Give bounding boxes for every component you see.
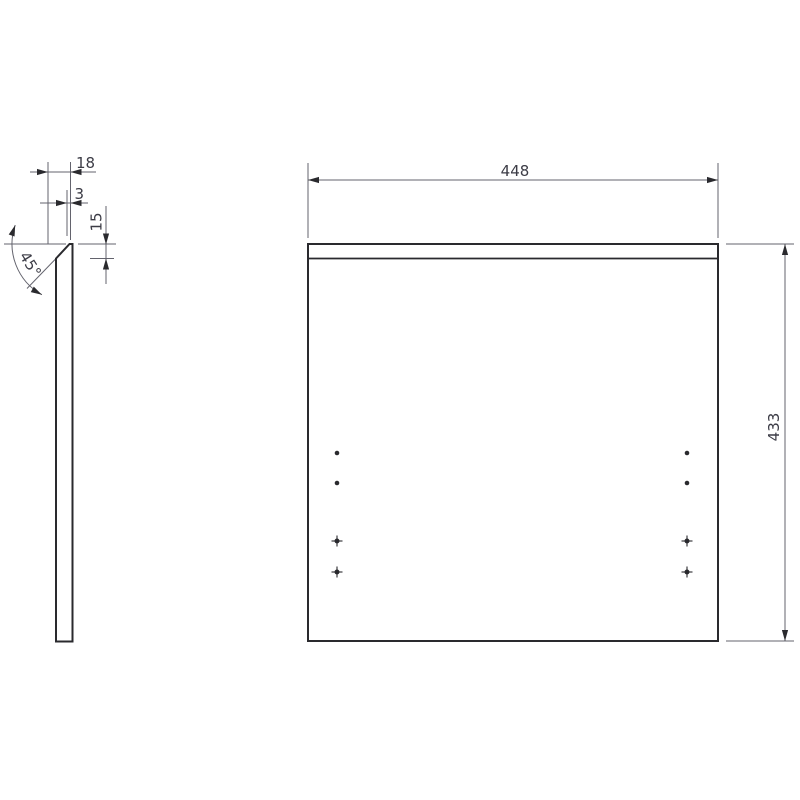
drawing-canvas: 18 3 45° 15 [0,0,800,800]
dimension-arrow [56,200,67,206]
hole-dot-marker [685,481,690,486]
side-panel-outline [56,244,73,642]
thickness-dimension-label: 18 [76,154,95,172]
chamfer-angle-label: 45° [16,248,45,280]
front-width-dimension: 448 [308,162,718,238]
hole-cross-marker [682,567,693,578]
hole-cross-marker [682,536,693,547]
hole-dot-marker [335,451,340,456]
hole-dot-marker [685,451,690,456]
chamfer-height-label: 15 [88,212,106,231]
side-thickness-dimension: 18 [30,154,96,244]
dimension-arrow [9,224,18,236]
side-chamfer-angle-dimension: 45° [4,224,116,297]
hole-cross-marker [332,567,343,578]
side-chamfer-height-dimension: 15 [88,206,115,284]
side-top-flat-dimension: 3 [40,185,88,236]
dimension-arrow [707,177,718,183]
top-flat-dimension-label: 3 [75,185,85,203]
hole-dot-markers [335,451,690,486]
dimension-arrow [103,259,109,270]
dimension-arrow [308,177,319,183]
hole-cross-marker [332,536,343,547]
height-dimension-label: 433 [765,413,783,442]
technical-drawing: 18 3 45° 15 [0,0,800,800]
side-view: 18 3 45° 15 [4,154,116,642]
hole-cross-markers [332,536,693,578]
front-plate-outline [308,244,718,641]
dimension-arrow [782,244,788,255]
dimension-arrow [103,234,109,245]
dimension-arrow [782,630,788,641]
front-view: 448 433 [308,162,794,641]
front-height-dimension: 433 [726,244,794,641]
width-dimension-label: 448 [501,162,530,180]
hole-dot-marker [335,481,340,486]
dimension-arrow [37,169,48,175]
